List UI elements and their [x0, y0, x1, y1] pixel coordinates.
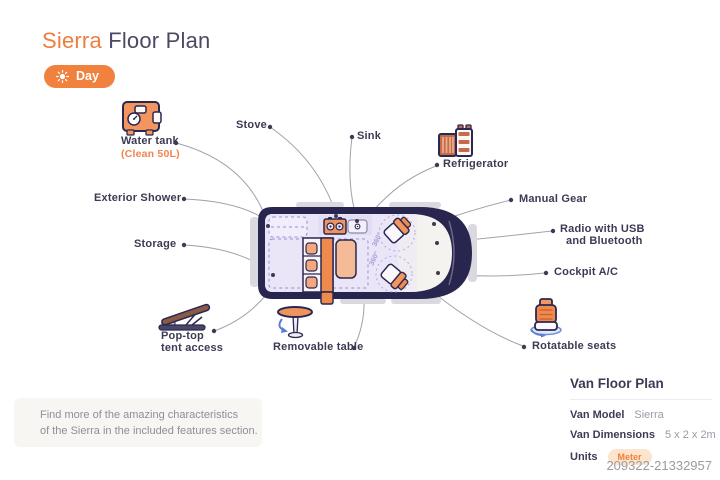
rotatable-seat-icon: [526, 296, 566, 338]
label-stove: Stove: [236, 119, 267, 131]
entry-step: [321, 292, 333, 304]
van-rear-bumper: [250, 217, 259, 287]
sun-icon: [56, 70, 69, 83]
label-rotatable-seats: Rotatable seats: [532, 340, 616, 352]
van-info-title: Van Floor Plan: [570, 376, 712, 391]
page-title: Sierra Floor Plan: [42, 28, 210, 54]
table-in-van: [336, 240, 356, 278]
day-mode-label: Day: [76, 69, 99, 83]
info-note: Find more of the amazing characteristics…: [14, 398, 262, 447]
info-note-line1: Find more of the amazing characteristics: [40, 407, 262, 423]
label-radio: Radio with USB and Bluetooth: [560, 223, 645, 247]
label-pop-top: Pop-top tent access: [161, 330, 223, 354]
label-water-tank-capacity: (Clean 50L): [121, 148, 180, 160]
page-title-accent: Sierra: [42, 28, 102, 53]
day-mode-toggle[interactable]: Day: [44, 65, 115, 88]
label-water-tank: Water tank (Clean 50L): [121, 135, 180, 160]
watermark-id: 209322-21332957: [606, 458, 712, 473]
pop-top-tent-icon: [156, 299, 216, 333]
page-title-rest: Floor Plan: [108, 28, 210, 53]
label-storage: Storage: [134, 238, 176, 250]
van-dimensions-row: Van Dimensions 5 x 2 x 2m: [570, 429, 712, 441]
label-manual-gear: Manual Gear: [519, 193, 587, 205]
info-note-line2: of the Sierra in the included features s…: [40, 423, 262, 439]
label-removable-table: Removable table: [273, 341, 363, 353]
leader-rotatable-seats: [429, 289, 523, 346]
units-label: Units: [570, 451, 598, 463]
water-tank-icon: [120, 97, 168, 139]
label-refrigerator: Refrigerator: [443, 158, 508, 170]
leader-stove: [270, 127, 336, 214]
removable-table-icon: [270, 303, 320, 341]
label-cockpit-ac: Cockpit A/C: [554, 266, 618, 278]
van-model-row: Van Model Sierra: [570, 409, 712, 421]
van-dimensions-value: 5 x 2 x 2m: [665, 429, 716, 441]
panel-divider: [570, 399, 712, 400]
leader-water-tank: [176, 143, 268, 224]
refrigerator-icon: [437, 122, 477, 162]
leader-sink: [350, 137, 357, 219]
leader-exterior-shower: [184, 199, 263, 218]
label-exterior-shower: Exterior Shower: [94, 192, 181, 204]
label-sink: Sink: [357, 130, 381, 142]
van-model-label: Van Model: [570, 409, 624, 421]
leader-pop-top: [214, 295, 266, 331]
van-model-value: Sierra: [634, 409, 663, 421]
van-dimensions-label: Van Dimensions: [570, 429, 655, 441]
stove-in-van: [324, 217, 346, 234]
van-top-view: 360° 360°: [250, 202, 477, 304]
